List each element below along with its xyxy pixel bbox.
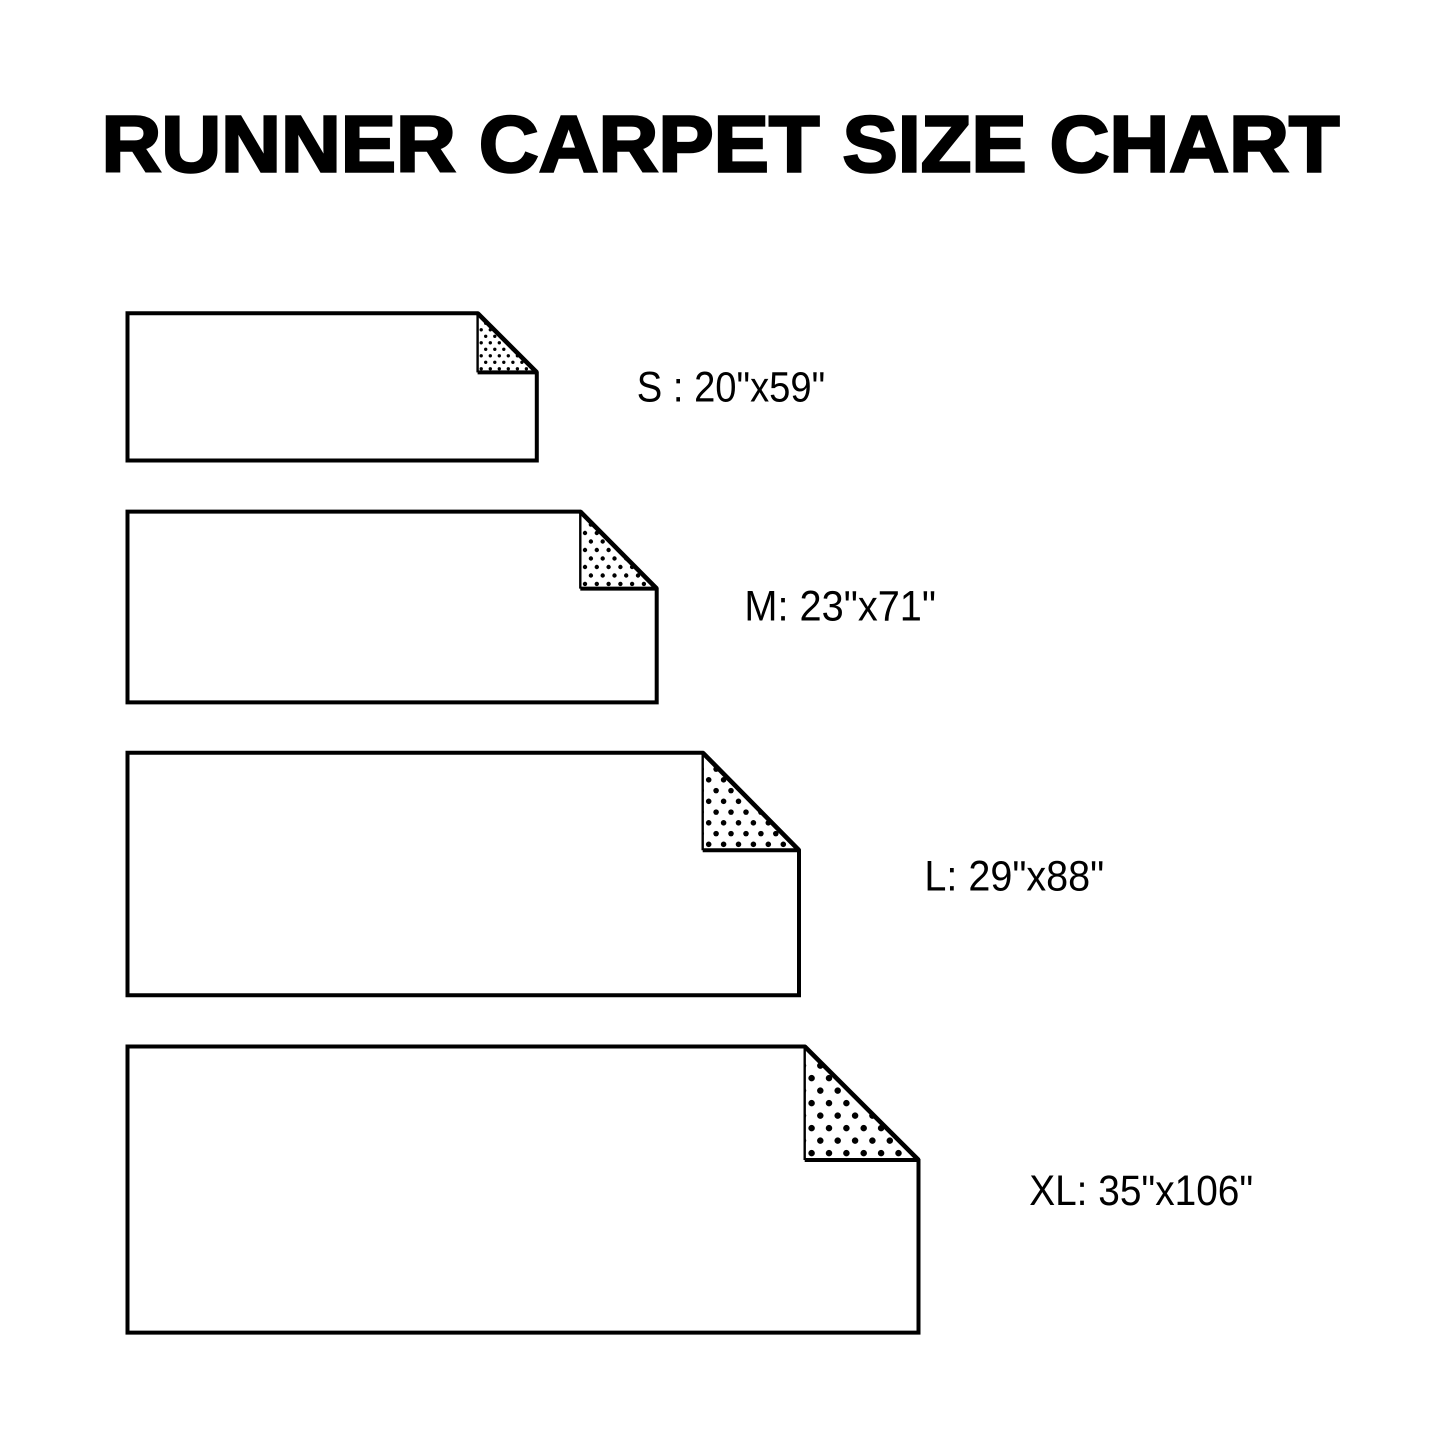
svg-text:S : 20"x59": S : 20"x59" — [637, 363, 825, 411]
svg-text:L: 29"x88": L: 29"x88" — [924, 852, 1104, 900]
svg-text:RUNNER CARPET SIZE CHART: RUNNER CARPET SIZE CHART — [102, 100, 1340, 189]
svg-text:M: 23"x71": M: 23"x71" — [744, 582, 936, 630]
svg-text:XL: 35"x106": XL: 35"x106" — [1029, 1167, 1253, 1215]
